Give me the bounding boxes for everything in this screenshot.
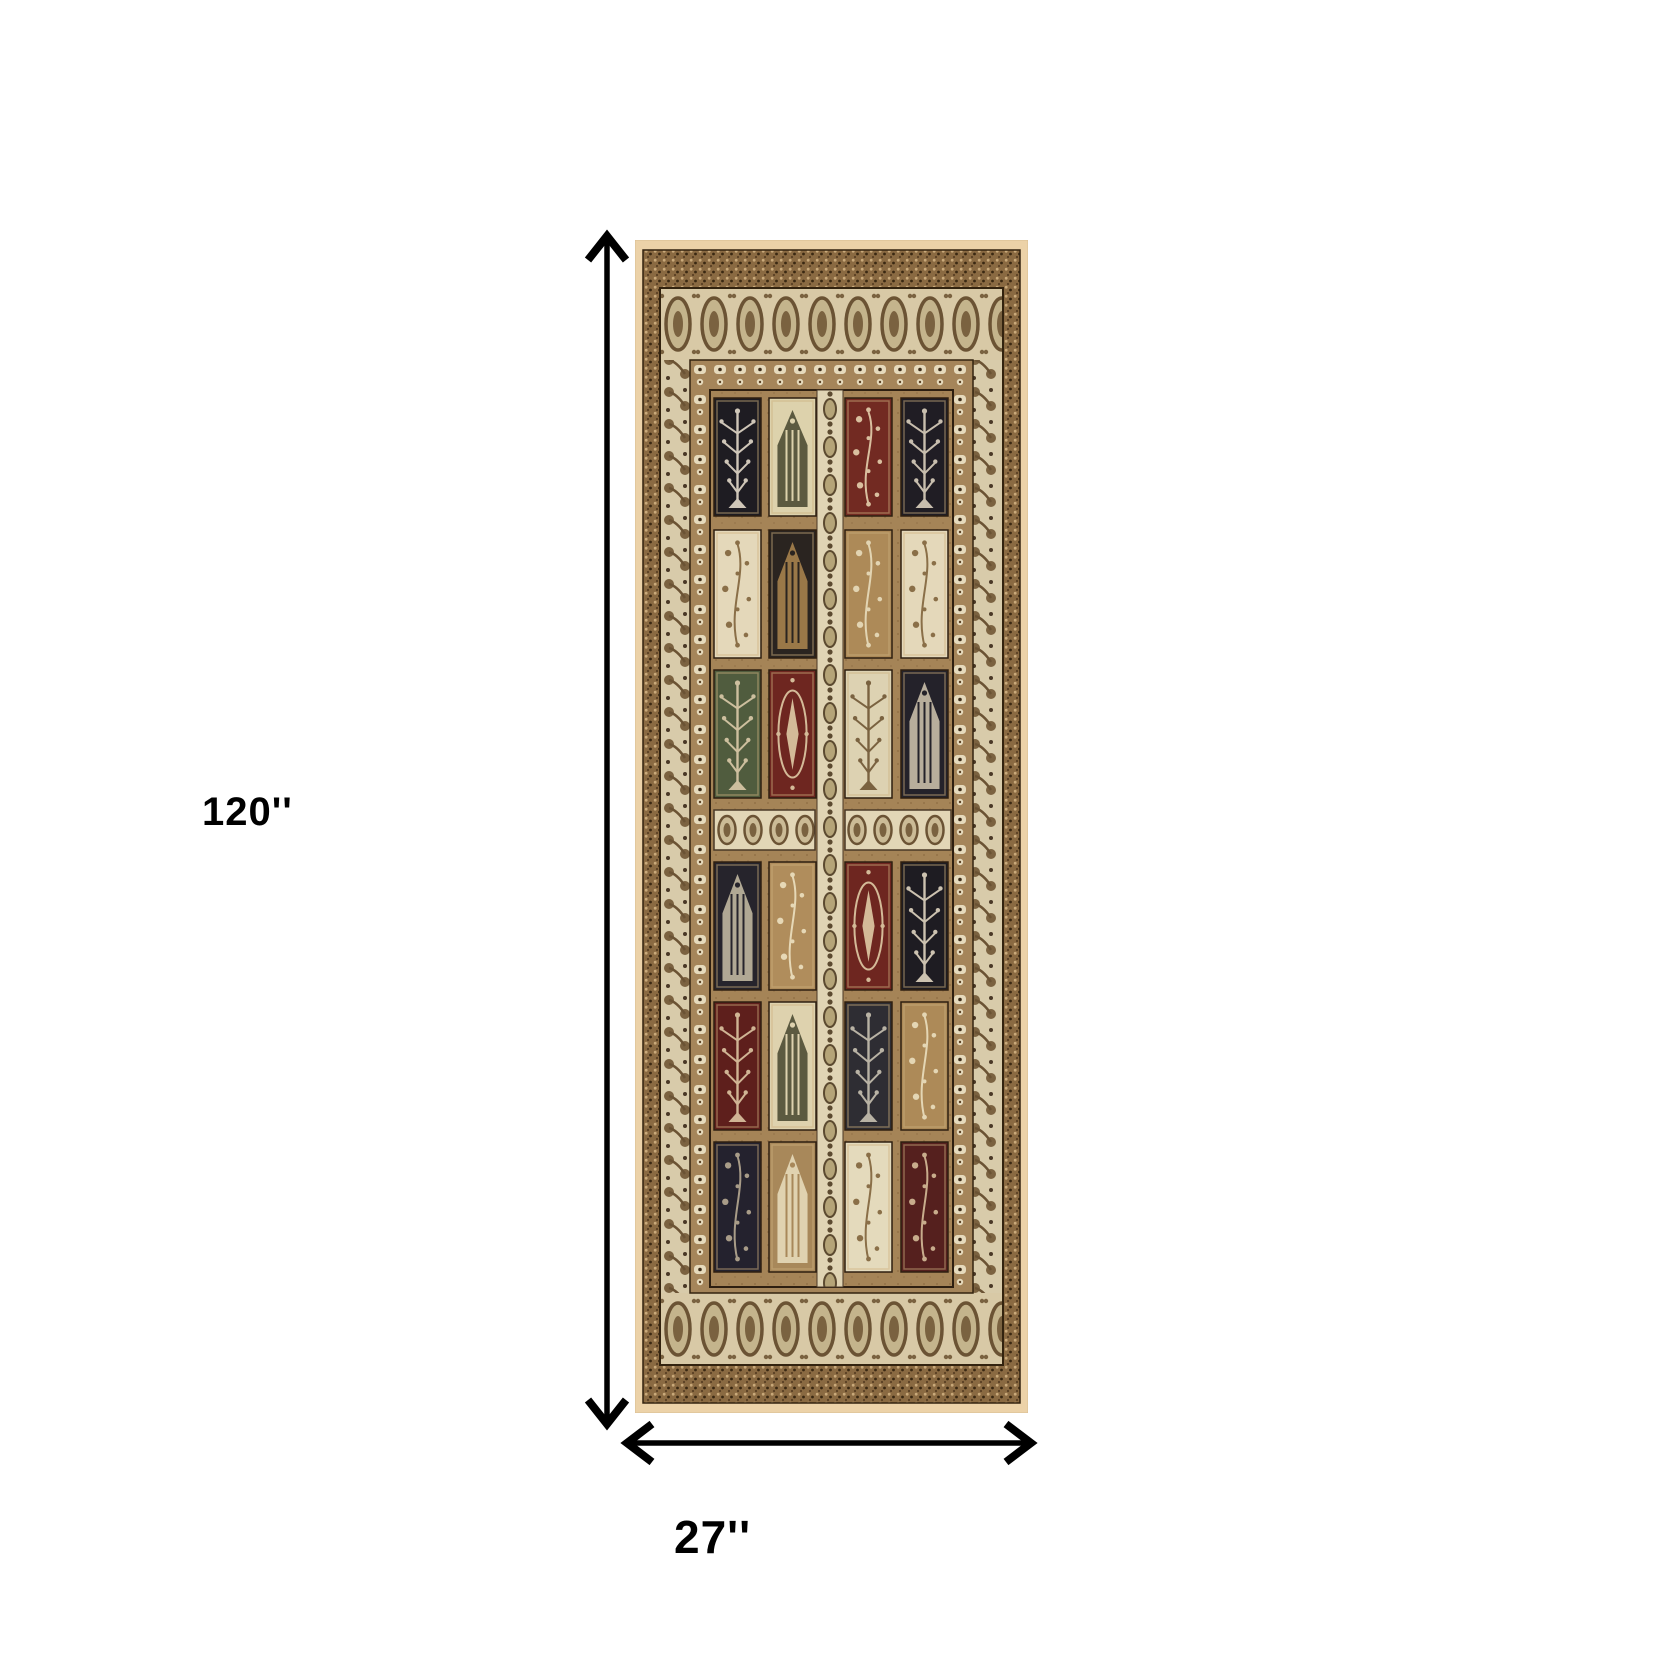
- height-dimension-label: 120'': [202, 792, 293, 832]
- height-arrow: [588, 236, 626, 1424]
- arrow-left-head: [627, 1424, 652, 1462]
- product-dimension-image: 120'' 27'': [0, 0, 1659, 1659]
- width-arrow: [627, 1424, 1031, 1462]
- rug-center-strip: [817, 390, 843, 1287]
- width-dimension-label: 27'': [674, 1514, 751, 1560]
- rug-field: [710, 390, 953, 1287]
- rug-image: [635, 240, 1028, 1413]
- arrow-up-head: [588, 236, 626, 260]
- rug-divider-right: [845, 810, 951, 850]
- rug-divider-left: [714, 810, 815, 850]
- arrow-down-head: [588, 1400, 626, 1424]
- arrow-right-head: [1006, 1424, 1031, 1462]
